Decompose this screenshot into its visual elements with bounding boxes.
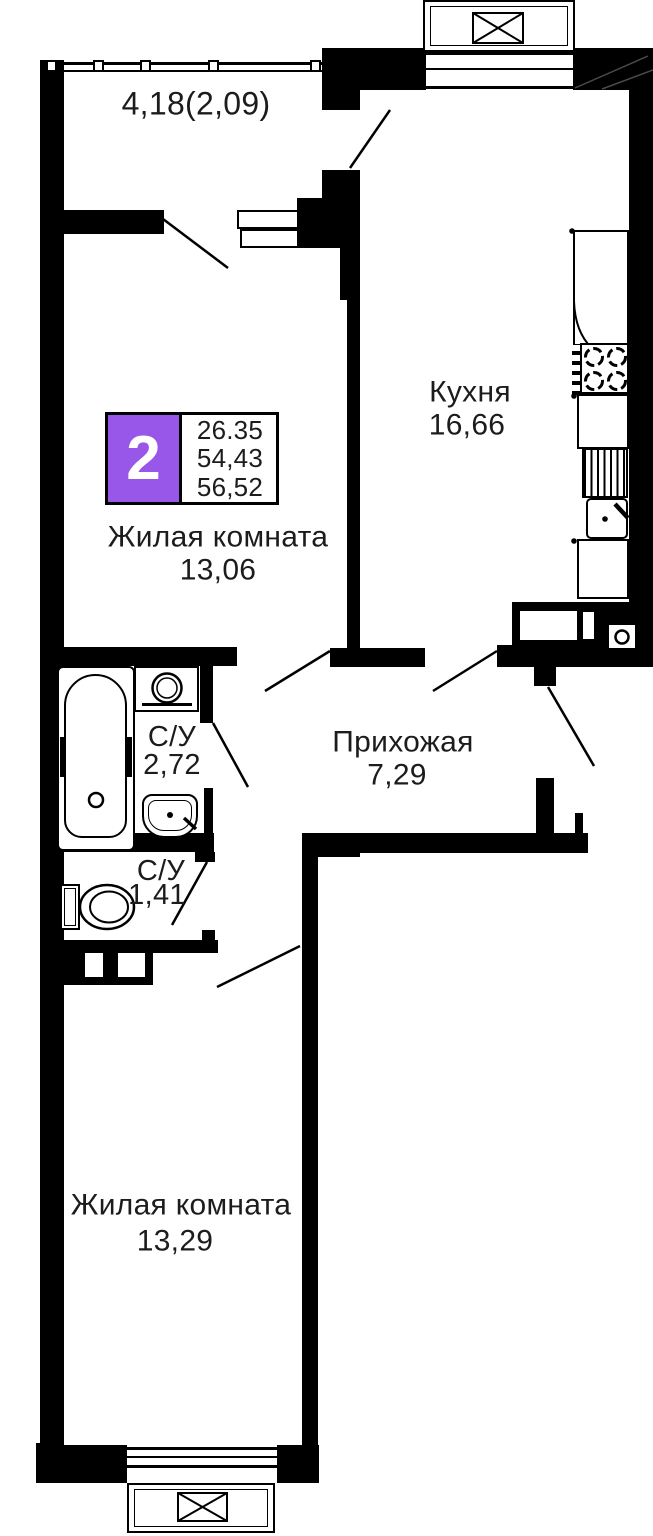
bathroom-sink-bowl [148, 800, 192, 831]
window-line [425, 52, 575, 55]
ac-basket-inner [134, 1489, 268, 1527]
wall-segment [36, 1445, 127, 1483]
rail-post [310, 60, 321, 72]
wall-segment [340, 248, 360, 300]
kitchen-sink [586, 498, 628, 539]
wall-segment [277, 1445, 319, 1483]
wall-segment [536, 778, 554, 833]
vent-duct [609, 625, 635, 648]
vent-shaft-slot [583, 612, 594, 639]
wall-segment [302, 857, 318, 1468]
window-line [425, 86, 575, 89]
living1-label: Жилая комната [108, 521, 329, 554]
window-line [127, 1456, 277, 1458]
wall-segment [629, 48, 653, 667]
ac-basket-inner [430, 6, 568, 46]
toilet-tank-inner [64, 888, 76, 926]
wall-segment [40, 647, 237, 666]
bathtub-handle [60, 737, 66, 777]
bathtub-handle [126, 737, 132, 777]
living2-label: Жилая комната [71, 1189, 292, 1222]
wall-segment [360, 48, 426, 90]
living2-door-swing [217, 946, 300, 987]
wall-segment [322, 48, 360, 110]
living2-area: 13,29 [137, 1225, 214, 1258]
balcony-kitchen-door-swing [350, 110, 390, 168]
toilet-bowl [80, 885, 134, 929]
bath1-door-swing [213, 723, 248, 787]
balcony-rail [48, 70, 322, 72]
sink-pedestal [151, 836, 189, 848]
door-stop [534, 667, 556, 686]
hallway-area: 7,29 [367, 759, 427, 792]
wall-segment [195, 852, 215, 862]
wardrobe-slot [85, 953, 103, 977]
window-line [425, 68, 575, 70]
rail-post [208, 60, 219, 72]
hallway-label: Прихожая [332, 726, 473, 759]
door-stop [202, 930, 215, 941]
unit-area-value: 54,43 [182, 444, 263, 472]
bath2-area: 1,41 [128, 880, 186, 912]
bathtub-inner [64, 674, 127, 838]
bath1-area: 2,72 [143, 750, 201, 782]
rail-post [93, 60, 104, 72]
window-frame [240, 229, 299, 248]
window-line [127, 1447, 277, 1450]
wall-segment [347, 300, 360, 650]
washing-machine-panel [142, 703, 192, 706]
unit-badge: 2 26.35 54,43 56,52 [105, 412, 279, 505]
stove [580, 343, 629, 394]
kitchen-counter [577, 539, 629, 599]
wall-notch [556, 813, 575, 833]
living1-area: 13,06 [180, 554, 257, 587]
kitchen-area: 16,66 [429, 409, 506, 442]
floor-plan: 4,18(2,09) Кухня 16,66 Жилая комната 13,… [0, 0, 653, 1536]
unit-number: 2 [108, 415, 182, 502]
balcony-living-door-swing [163, 219, 228, 268]
balcony-rail [48, 62, 322, 65]
wall-segment [48, 210, 164, 234]
wall-segment [58, 940, 218, 953]
wardrobe-slot [118, 953, 145, 977]
unit-areas: 26.35 54,43 56,52 [182, 415, 276, 502]
window-frame [237, 210, 299, 229]
rail-post [46, 60, 57, 72]
rail-post [140, 60, 151, 72]
balcony-dimension: 4,18(2,09) [122, 86, 271, 121]
wall-segment [297, 198, 360, 248]
kitchen-counter [573, 230, 629, 346]
wall-segment [204, 788, 213, 835]
kitchen-door-swing [433, 651, 497, 691]
window-line [127, 1465, 277, 1468]
unit-area-value: 26.35 [182, 416, 263, 444]
kitchen-counter [577, 394, 629, 449]
toilet-bowl-inner [90, 892, 128, 923]
wall-segment [200, 666, 213, 723]
sink-drainer [582, 448, 628, 498]
unit-area-value: 56,52 [182, 473, 263, 501]
living1-door-swing [265, 651, 330, 691]
vent-shaft-slot [520, 611, 577, 640]
wall-segment [575, 813, 583, 833]
entrance-door-swing [548, 687, 594, 766]
wall-segment [497, 645, 513, 667]
wall-segment [302, 835, 360, 857]
wall-segment [330, 648, 425, 667]
kitchen-label: Кухня [429, 376, 511, 409]
